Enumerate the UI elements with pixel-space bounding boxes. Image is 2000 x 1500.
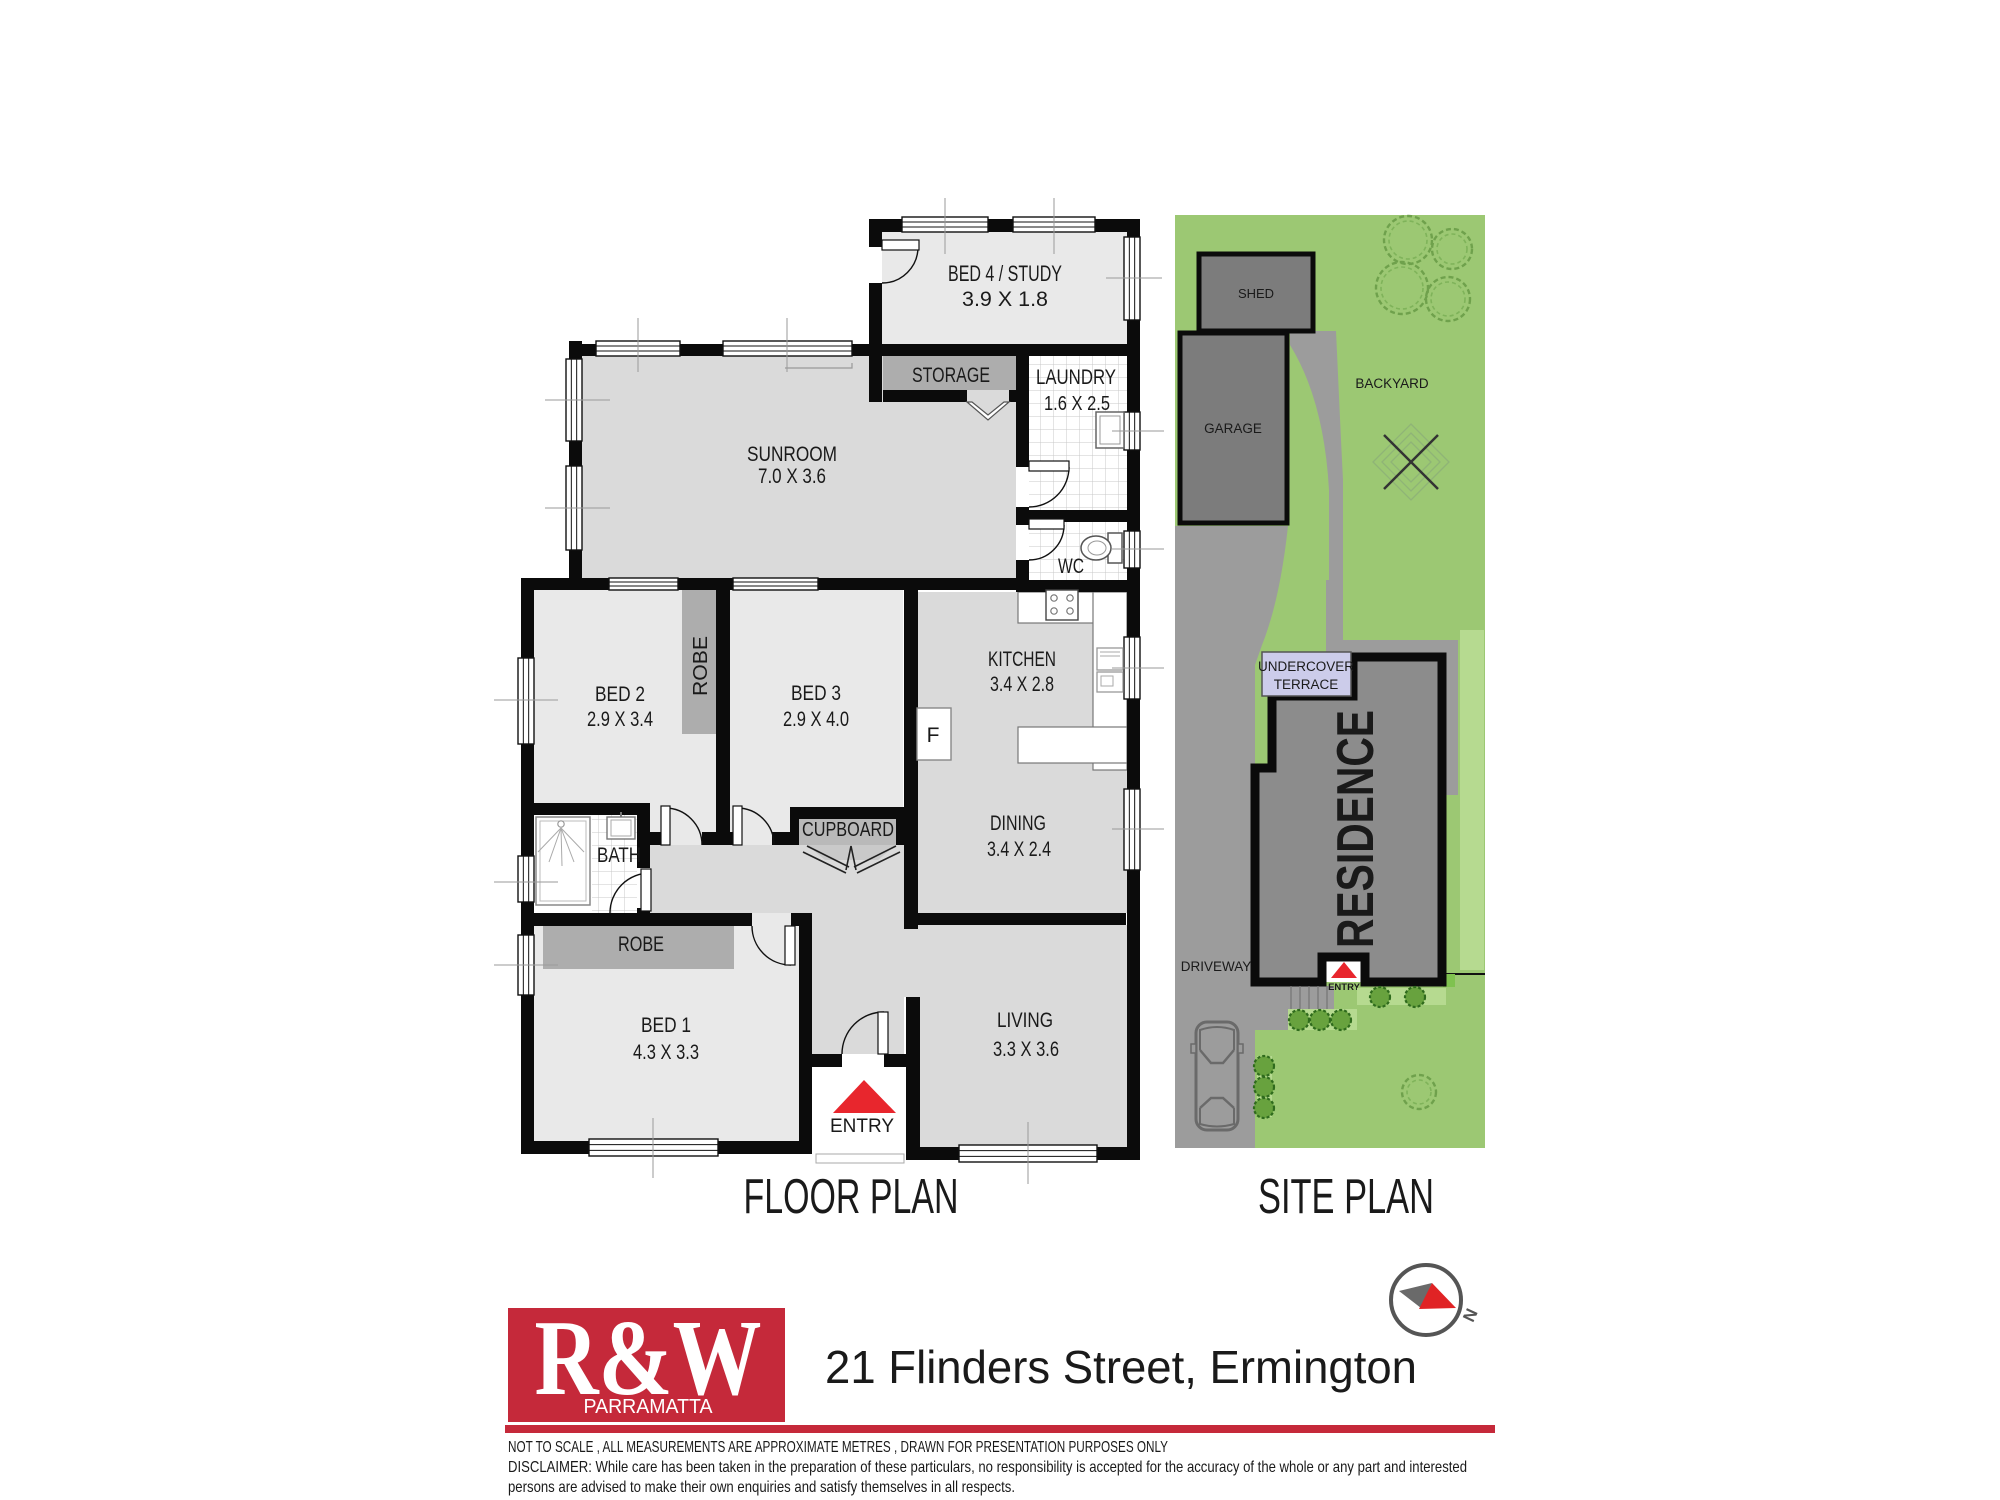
svg-text:UNDERCOVER: UNDERCOVER xyxy=(1258,659,1354,674)
svg-text:NOT TO SCALE , ALL MEASUREMENT: NOT TO SCALE , ALL MEASUREMENTS ARE APPR… xyxy=(508,1439,1168,1456)
svg-text:DINING: DINING xyxy=(990,812,1046,835)
svg-text:ROBE: ROBE xyxy=(618,933,664,956)
svg-text:BED 1: BED 1 xyxy=(641,1014,691,1037)
svg-text:2.9 X 3.4: 2.9 X 3.4 xyxy=(587,708,653,731)
svg-text:2.9 X 4.0: 2.9 X 4.0 xyxy=(783,708,849,731)
svg-text:TERRACE: TERRACE xyxy=(1274,677,1339,692)
svg-text:SITE PLAN: SITE PLAN xyxy=(1258,1170,1434,1224)
svg-text:F: F xyxy=(927,724,940,747)
svg-text:persons are advised to make th: persons are advised to make their own en… xyxy=(508,1479,1015,1496)
svg-text:KITCHEN: KITCHEN xyxy=(988,648,1056,671)
svg-text:SUNROOM: SUNROOM xyxy=(747,443,837,466)
svg-text:DISCLAIMER: While care has be: DISCLAIMER: While care has been taken in… xyxy=(508,1459,1467,1476)
svg-text:3.3 X 3.6: 3.3 X 3.6 xyxy=(993,1038,1059,1061)
svg-text:4.3 X 3.3: 4.3 X 3.3 xyxy=(633,1041,699,1064)
svg-text:3.4 X 2.4: 3.4 X 2.4 xyxy=(987,838,1051,861)
svg-text:RESIDENCE: RESIDENCE xyxy=(1327,710,1385,948)
svg-text:SHED: SHED xyxy=(1238,286,1274,301)
svg-text:FLOOR PLAN: FLOOR PLAN xyxy=(744,1170,959,1224)
svg-text:LAUNDRY: LAUNDRY xyxy=(1036,366,1116,389)
svg-text:ENTRY: ENTRY xyxy=(1328,982,1361,993)
svg-text:STORAGE: STORAGE xyxy=(912,364,990,387)
svg-text:GARAGE: GARAGE xyxy=(1204,421,1262,436)
svg-text:LIVING: LIVING xyxy=(997,1009,1053,1032)
svg-text:CUPBOARD: CUPBOARD xyxy=(802,819,894,841)
svg-text:3.9 X 1.8: 3.9 X 1.8 xyxy=(962,288,1048,311)
svg-text:ROBE: ROBE xyxy=(690,636,712,696)
svg-text:3.4 X 2.8: 3.4 X 2.8 xyxy=(990,673,1054,696)
svg-text:PARRAMATTA: PARRAMATTA xyxy=(584,1396,714,1418)
svg-text:WC: WC xyxy=(1058,555,1084,578)
svg-text:ENTRY: ENTRY xyxy=(830,1116,894,1137)
svg-text:1.6 X 2.5: 1.6 X 2.5 xyxy=(1044,393,1110,415)
svg-text:7.0 X 3.6: 7.0 X 3.6 xyxy=(758,465,826,488)
svg-text:BED 4 / STUDY: BED 4 / STUDY xyxy=(948,261,1062,286)
svg-text:21 Flinders Street, Ermington: 21 Flinders Street, Ermington xyxy=(825,1341,1417,1393)
svg-text:BED 3: BED 3 xyxy=(791,682,841,705)
svg-text:BED 2: BED 2 xyxy=(595,683,645,706)
svg-text:BACKYARD: BACKYARD xyxy=(1355,376,1429,391)
svg-text:DRIVEWAY: DRIVEWAY xyxy=(1181,959,1252,974)
svg-text:BATH: BATH xyxy=(597,844,641,867)
